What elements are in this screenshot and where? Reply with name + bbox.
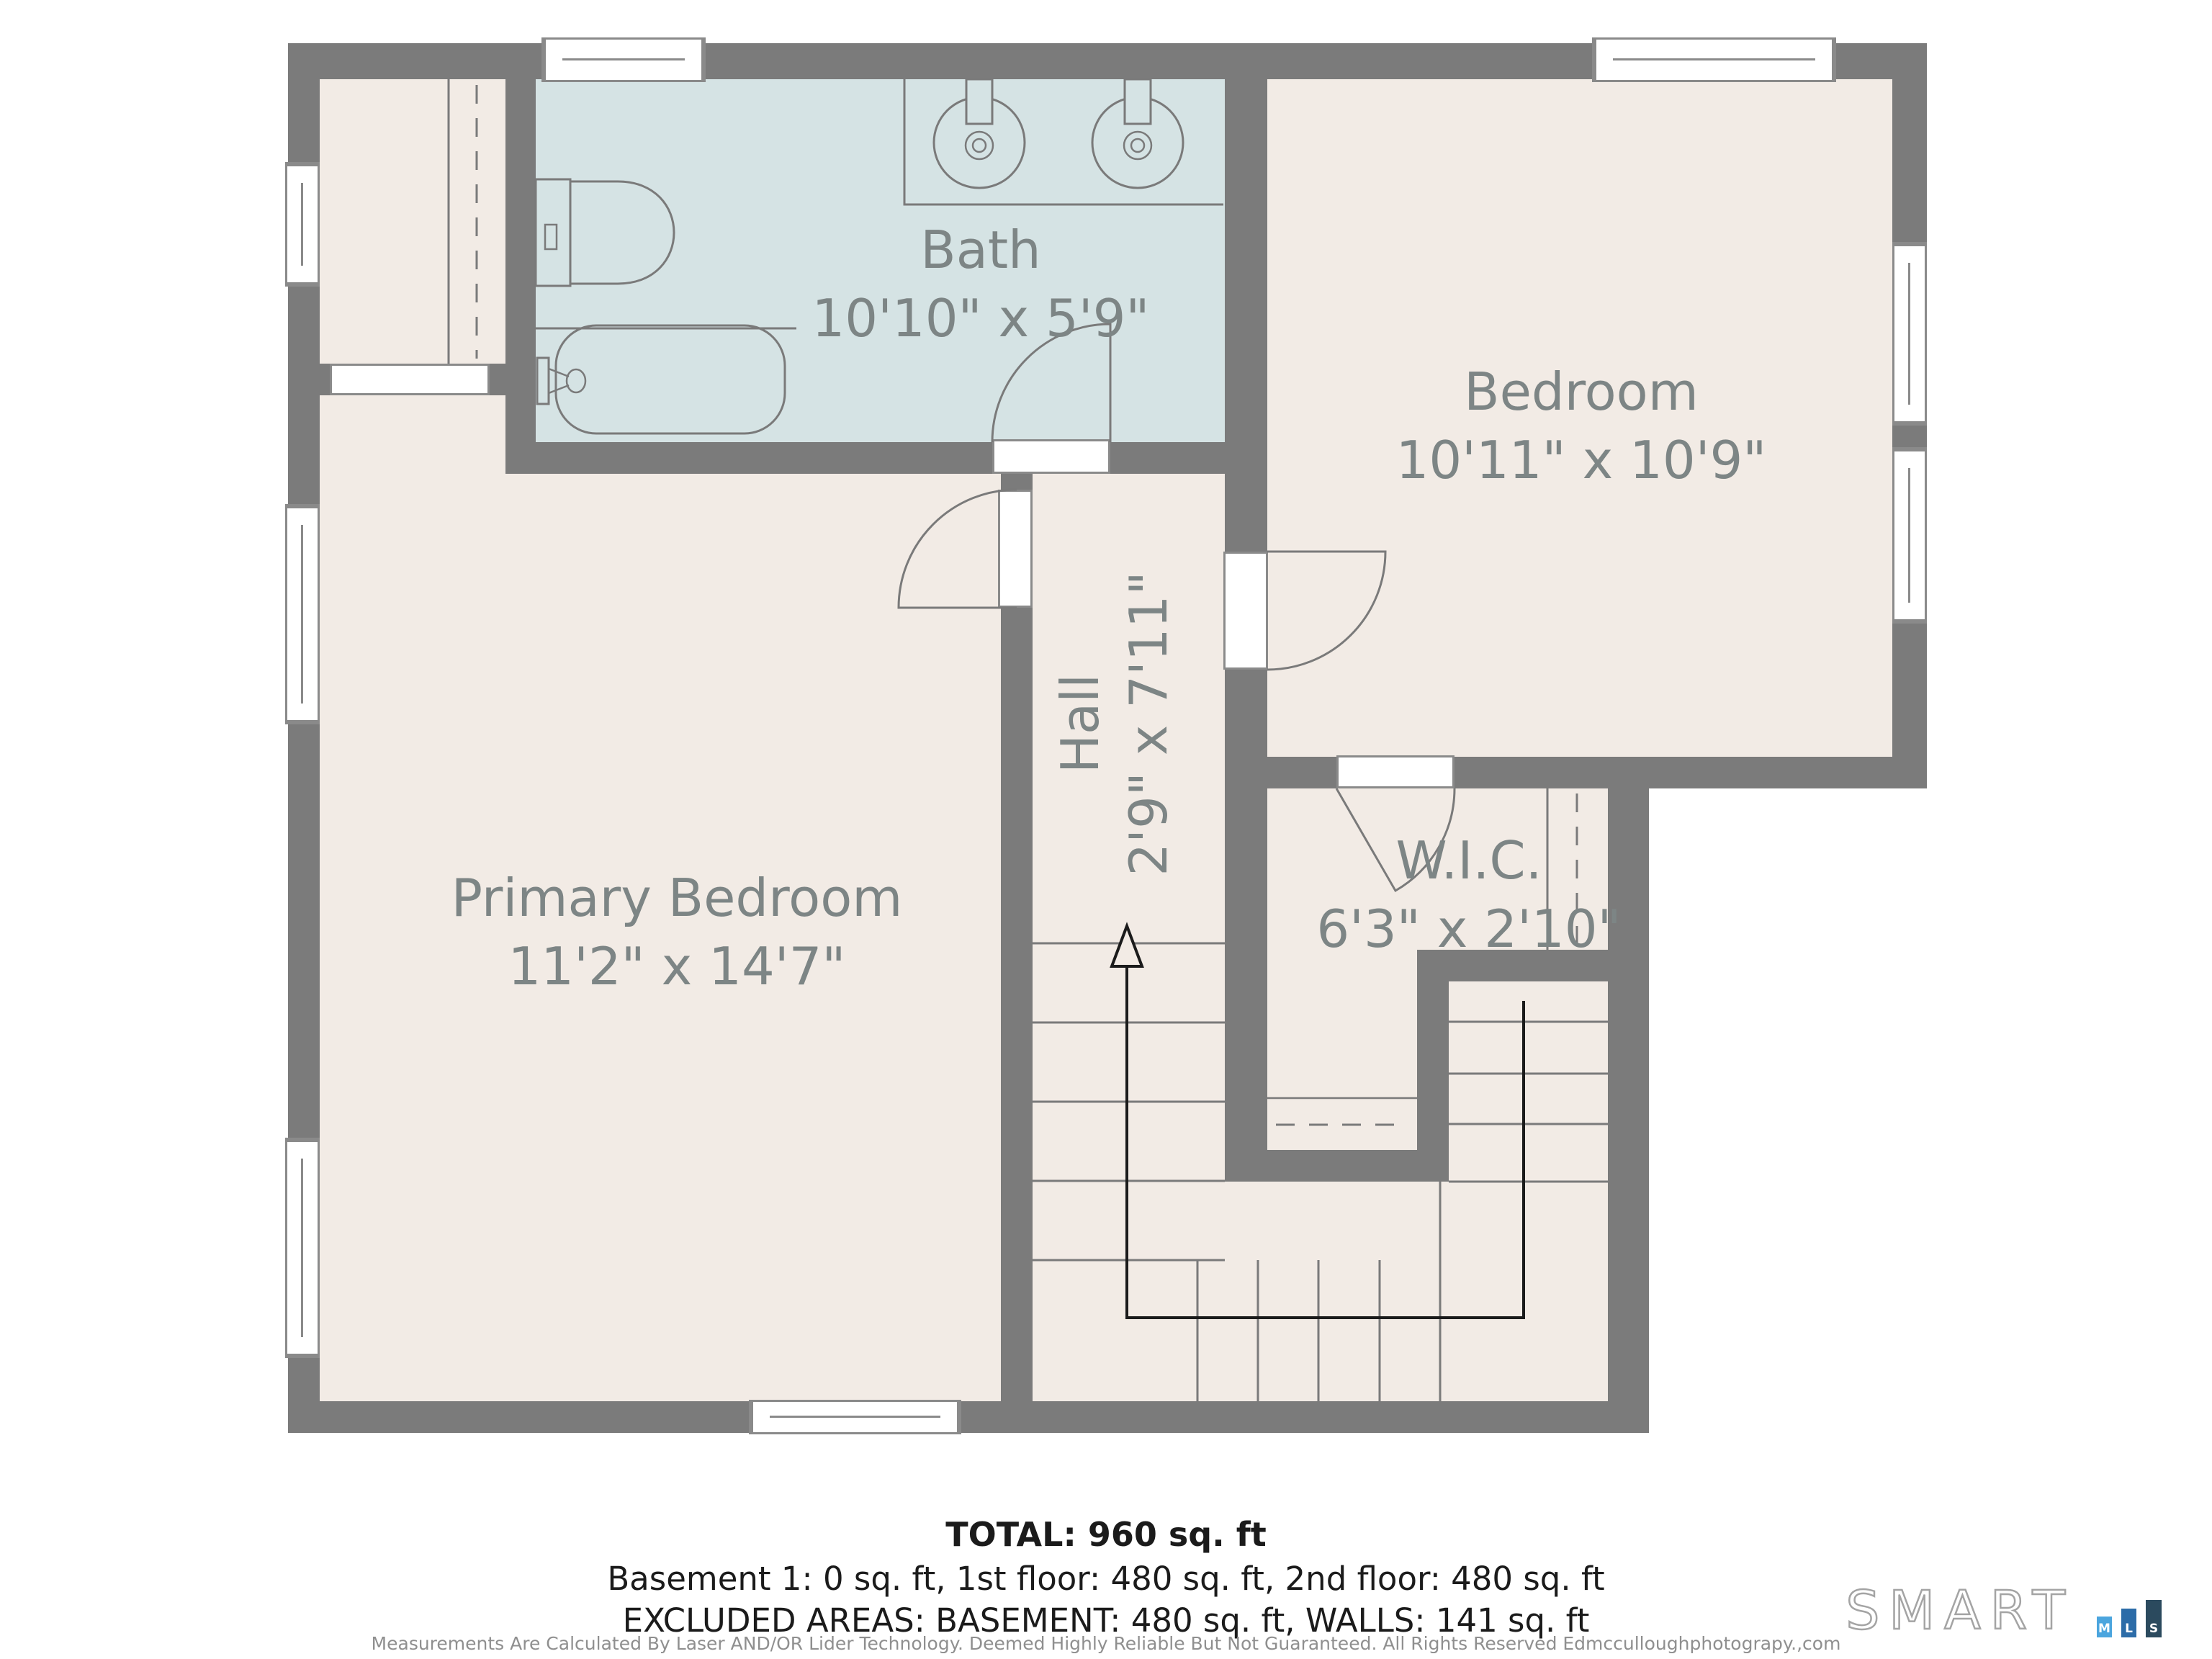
window (1592, 37, 1836, 82)
wall-outer-bottom (288, 1401, 1649, 1433)
bedroom-label: Bedroom 10'11" x 10'9" (1396, 358, 1767, 495)
room-name: Bath (811, 216, 1149, 284)
wic-door-opening (1336, 755, 1455, 788)
wall-bath-bottom (536, 442, 1267, 474)
window (285, 504, 320, 724)
wall-wic-bottom (1225, 1150, 1449, 1182)
primary-bedroom-door (998, 490, 1033, 608)
bath-label: Bath 10'10" x 5'9" (811, 216, 1149, 353)
room-dims: 11'2" x 14'7" (451, 932, 903, 1001)
total-area-text: TOTAL: 960 sq. ft (0, 1515, 2212, 1554)
bedroom-door (1223, 552, 1268, 670)
smartmls-wordmark: SMART (1845, 1584, 2074, 1637)
floor-stairs-right (1449, 981, 1608, 1401)
closet-opening (330, 364, 490, 395)
smartmls-logo: SMART M L S (1845, 1584, 2162, 1637)
floor-plan-canvas: Bath 10'10" x 5'9" Bedroom 10'11" x 10'9… (0, 0, 2212, 1659)
window (541, 37, 706, 82)
room-name: W.I.C. (1316, 827, 1621, 895)
window (1892, 447, 1927, 624)
window (285, 1138, 320, 1358)
wall-wic-step-v (1417, 950, 1449, 1182)
floor-stairs-bottom (1225, 1182, 1449, 1401)
window (1892, 242, 1927, 426)
room-name: Bedroom (1396, 358, 1767, 426)
room-dims: 10'10" x 5'9" (811, 284, 1149, 353)
wall-closet-bath (505, 43, 536, 474)
floor-closet (320, 79, 505, 364)
primary-bedroom-label: Primary Bedroom 11'2" x 14'7" (451, 864, 903, 1001)
room-dims: 2'9" x 7'11" (1115, 571, 1183, 876)
window (749, 1400, 961, 1434)
floor-primary-notch (320, 395, 505, 474)
floor-wic-lower (1267, 950, 1417, 1150)
mls-bar-s: S (2146, 1600, 2162, 1637)
room-dims: 6'3" x 2'10" (1316, 895, 1621, 963)
mls-bar-m: M (2097, 1617, 2112, 1637)
hall-label: Hall 2'9" x 7'11" (1046, 571, 1183, 876)
room-name: Hall (1046, 571, 1115, 876)
wic-label: W.I.C. 6'3" x 2'10" (1316, 827, 1621, 963)
room-dims: 10'11" x 10'9" (1396, 426, 1767, 495)
room-name: Primary Bedroom (451, 864, 903, 932)
bath-door (992, 439, 1110, 474)
window (285, 162, 320, 287)
mls-bar-l: L (2121, 1609, 2136, 1637)
wall-hall-left (1001, 474, 1033, 1401)
